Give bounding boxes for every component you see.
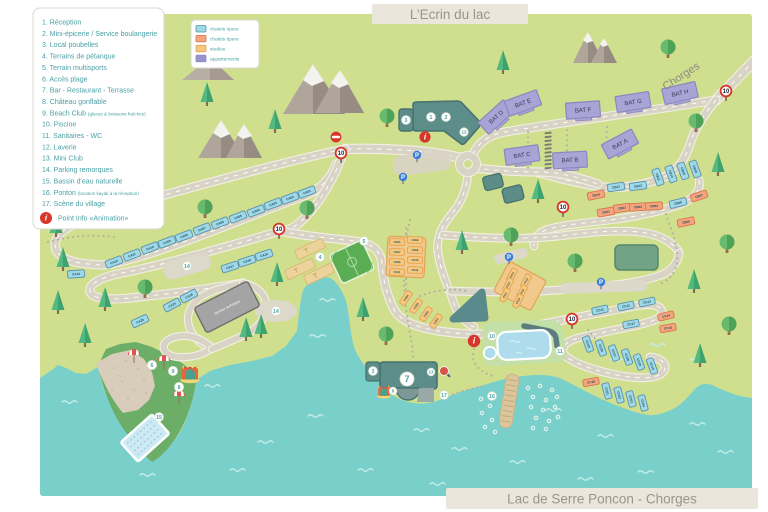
svg-text:P: P: [507, 255, 511, 261]
svg-text:1. Réception: 1. Réception: [42, 20, 81, 27]
svg-text:8: 8: [178, 385, 181, 391]
svg-text:CS07: CS07: [393, 250, 401, 254]
svg-text:3. Local poubelles: 3. Local poubelles: [42, 42, 99, 49]
svg-text:1: 1: [430, 115, 433, 121]
svg-text:CA13: CA13: [72, 272, 80, 277]
svg-text:2: 2: [445, 115, 448, 121]
svg-text:16. Ponton (location kayak à l: 16. Ponton (location kayak à la réceptio…: [42, 190, 139, 197]
svg-text:7: 7: [404, 374, 409, 384]
svg-text:Point Info «Animation»: Point Info «Animation»: [58, 216, 129, 223]
svg-text:10: 10: [569, 317, 576, 323]
svg-text:11: 11: [557, 349, 563, 355]
svg-text:9. Beach Club (glaces & boisso: 9. Beach Club (glaces & boissons fraîche…: [42, 110, 146, 117]
svg-text:13: 13: [429, 370, 434, 375]
svg-text:CS11: CS11: [394, 270, 401, 274]
svg-text:14: 14: [184, 264, 190, 270]
svg-text:3: 3: [372, 369, 375, 375]
svg-text:chalets 8pers: chalets 8pers: [210, 37, 239, 43]
svg-text:BAT F: BAT F: [575, 107, 592, 114]
svg-text:10: 10: [276, 227, 283, 233]
svg-text:8. Château gonflable: 8. Château gonflable: [42, 99, 107, 106]
svg-text:10: 10: [723, 89, 730, 95]
svg-text:BAT B: BAT B: [562, 158, 579, 165]
svg-text:appartements: appartements: [210, 56, 240, 62]
svg-text:P: P: [401, 175, 405, 181]
svg-text:14: 14: [273, 309, 279, 315]
svg-text:Lac de Serre Poncon - Chorges: Lac de Serre Poncon - Chorges: [507, 492, 697, 507]
svg-text:6. Accès plage: 6. Accès plage: [42, 76, 88, 83]
svg-text:4. Terrains de pétanque: 4. Terrains de pétanque: [42, 54, 116, 61]
svg-text:4: 4: [319, 255, 322, 261]
svg-text:CS09: CS09: [393, 260, 401, 264]
svg-text:14. Parking remorques: 14. Parking remorques: [42, 167, 113, 174]
svg-text:17: 17: [441, 393, 447, 399]
svg-text:CS10: CS10: [411, 258, 419, 262]
svg-text:10. Piscine: 10. Piscine: [42, 122, 76, 129]
svg-text:17. Scène du village: 17. Scène du village: [42, 201, 105, 208]
svg-text:3: 3: [405, 118, 408, 124]
svg-text:7. Bar - Restaurant - Terrasse: 7. Bar - Restaurant - Terrasse: [42, 88, 134, 95]
svg-text:studios: studios: [210, 47, 226, 53]
svg-text:CS08: CS08: [411, 248, 419, 252]
svg-text:5. Terrain multisports: 5. Terrain multisports: [42, 65, 107, 72]
svg-text:10: 10: [338, 151, 345, 157]
svg-text:15. Bassin d'eau naturelle: 15. Bassin d'eau naturelle: [42, 178, 122, 185]
svg-text:10: 10: [560, 205, 567, 211]
svg-text:9: 9: [172, 369, 175, 375]
svg-text:15: 15: [156, 415, 162, 421]
svg-text:CS05: CS05: [393, 240, 401, 244]
svg-text:16: 16: [489, 394, 495, 400]
svg-text:P: P: [599, 280, 603, 286]
svg-text:12: 12: [461, 130, 467, 135]
svg-text:CS12: CS12: [411, 268, 419, 272]
svg-text:10: 10: [489, 334, 495, 340]
svg-text:5: 5: [363, 239, 366, 245]
svg-text:12. Laverie: 12. Laverie: [42, 144, 77, 151]
svg-text:L’Ecrin du lac: L’Ecrin du lac: [410, 7, 491, 22]
svg-text:11. Sanitaires - WC: 11. Sanitaires - WC: [42, 133, 102, 140]
svg-text:chalets 4pers: chalets 4pers: [210, 27, 239, 33]
svg-text:2. Mini-épicerie / Service bou: 2. Mini-épicerie / Service boulangerie: [42, 31, 157, 38]
svg-text:CS06: CS06: [411, 238, 419, 242]
svg-text:CB04: CB04: [650, 204, 658, 209]
svg-text:13. Mini Club: 13. Mini Club: [42, 156, 83, 163]
svg-text:P: P: [415, 153, 419, 159]
svg-text:6: 6: [151, 363, 154, 369]
svg-text:CB03: CB03: [634, 205, 642, 210]
